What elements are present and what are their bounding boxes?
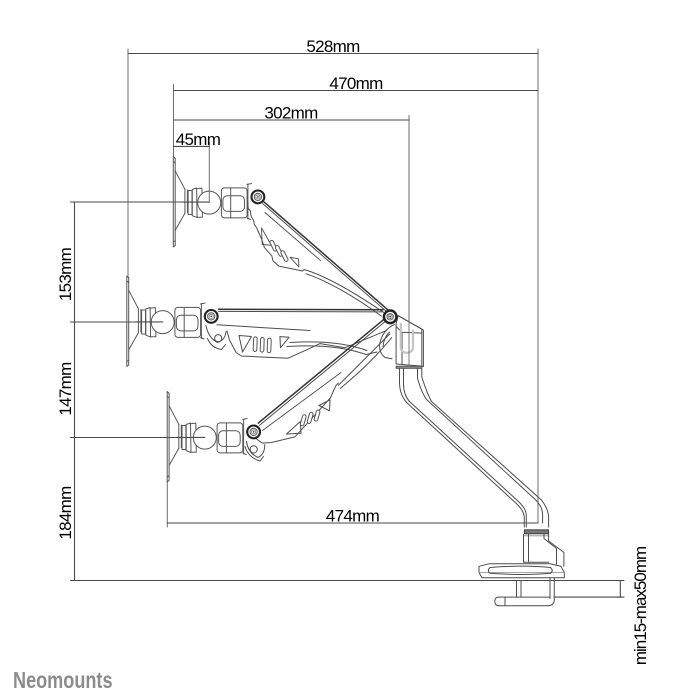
svg-text:min15-max50mm: min15-max50mm	[631, 546, 650, 665]
svg-text:302mm: 302mm	[264, 104, 318, 123]
svg-text:147mm: 147mm	[56, 362, 75, 416]
svg-text:528mm: 528mm	[306, 37, 360, 56]
svg-text:153mm: 153mm	[56, 247, 75, 301]
svg-text:470mm: 470mm	[329, 74, 383, 93]
svg-text:45mm: 45mm	[176, 130, 221, 149]
svg-text:184mm: 184mm	[56, 486, 75, 540]
svg-text:474mm: 474mm	[326, 506, 380, 525]
svg-text:Neomounts: Neomounts	[13, 668, 113, 694]
